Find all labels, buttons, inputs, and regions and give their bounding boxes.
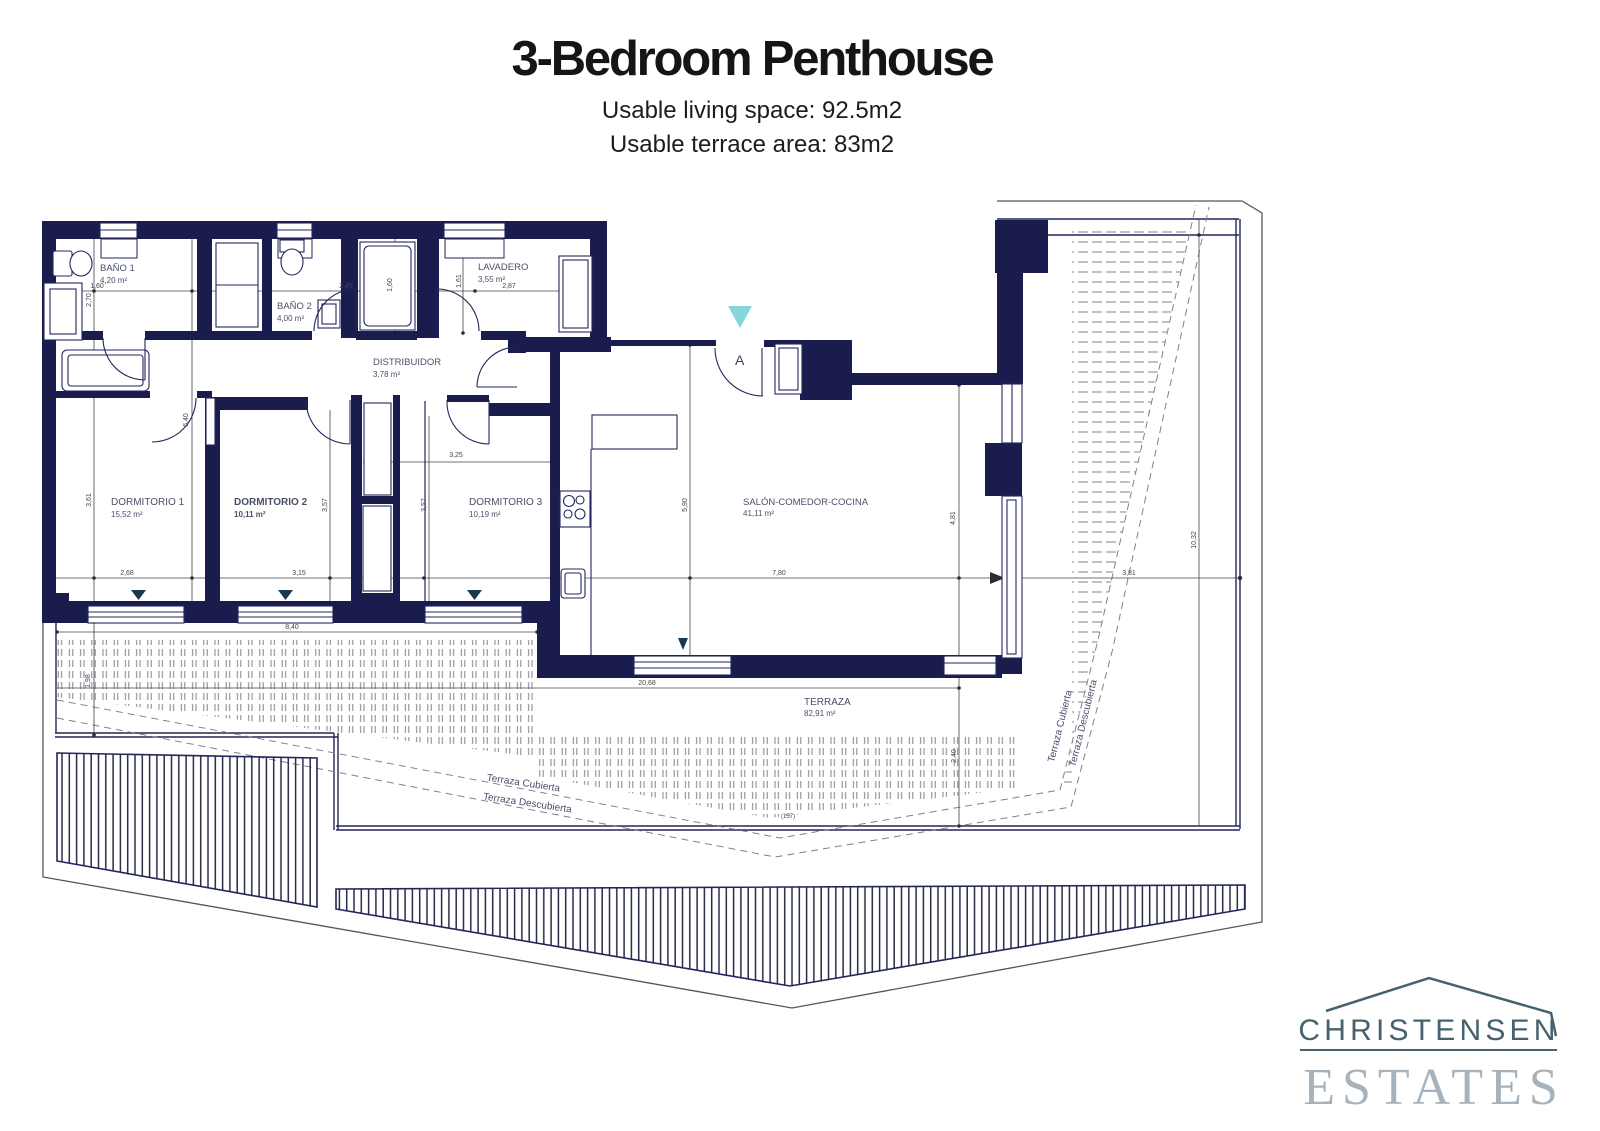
- svg-text:BAÑO 1: BAÑO 1: [100, 263, 135, 274]
- svg-text:4,20 m²: 4,20 m²: [100, 276, 127, 285]
- svg-text:CHRISTENSEN: CHRISTENSEN: [1298, 1014, 1559, 1047]
- svg-text:3,61: 3,61: [86, 493, 93, 507]
- svg-text:DISTRIBUIDOR: DISTRIBUIDOR: [373, 357, 441, 368]
- svg-text:A: A: [735, 352, 745, 368]
- svg-text:ESTATES: ESTATES: [1303, 1059, 1565, 1116]
- svg-text:7,80: 7,80: [772, 570, 786, 577]
- svg-text:3,78 m²: 3,78 m²: [373, 370, 400, 379]
- svg-text:2,70: 2,70: [86, 293, 93, 307]
- svg-text:BAÑO 2: BAÑO 2: [277, 301, 312, 312]
- svg-text:6,40: 6,40: [183, 413, 190, 427]
- svg-text:3,81: 3,81: [1122, 570, 1136, 577]
- svg-text:Terraza Descubierta: Terraza Descubierta: [482, 791, 573, 815]
- svg-text:20,68: 20,68: [638, 680, 656, 687]
- svg-text:3,15: 3,15: [292, 570, 306, 577]
- svg-text:1,60: 1,60: [387, 278, 394, 292]
- svg-text:SALÓN-COMEDOR-COCINA: SALÓN-COMEDOR-COCINA: [743, 497, 869, 508]
- svg-text:DORMITORIO 1: DORMITORIO 1: [111, 497, 185, 508]
- svg-text:4,00 m²: 4,00 m²: [277, 314, 304, 323]
- svg-text:3,57: 3,57: [322, 498, 329, 512]
- svg-text:82,91 m²: 82,91 m²: [804, 709, 836, 718]
- svg-text:TERRAZA: TERRAZA: [804, 697, 851, 708]
- svg-text:41,11 m²: 41,11 m²: [743, 509, 774, 518]
- svg-text:3,25: 3,25: [449, 452, 463, 459]
- svg-text:8,40: 8,40: [285, 624, 299, 631]
- svg-text:10,11 m²: 10,11 m²: [234, 510, 266, 519]
- svg-text:2,49: 2,49: [339, 283, 353, 290]
- svg-text:2,68: 2,68: [120, 570, 134, 577]
- svg-text:4,81: 4,81: [950, 511, 957, 525]
- svg-text:LAVADERO: LAVADERO: [478, 262, 528, 273]
- svg-text:2,40: 2,40: [951, 749, 958, 763]
- svg-text:2,87: 2,87: [502, 283, 516, 290]
- svg-text:10,32: 10,32: [1191, 531, 1198, 549]
- svg-text:15,52 m²: 15,52 m²: [111, 510, 143, 519]
- svg-text:(157): (157): [781, 814, 795, 820]
- svg-text:5,90: 5,90: [682, 498, 689, 512]
- svg-text:3,57: 3,57: [421, 498, 428, 512]
- svg-text:1,61: 1,61: [456, 274, 463, 288]
- svg-text:1,98: 1,98: [85, 674, 92, 688]
- svg-text:1,60: 1,60: [90, 283, 104, 290]
- svg-text:10,19 m²: 10,19 m²: [469, 510, 501, 519]
- svg-text:DORMITORIO 3: DORMITORIO 3: [469, 497, 543, 508]
- svg-text:DORMITORIO 2: DORMITORIO 2: [234, 497, 308, 508]
